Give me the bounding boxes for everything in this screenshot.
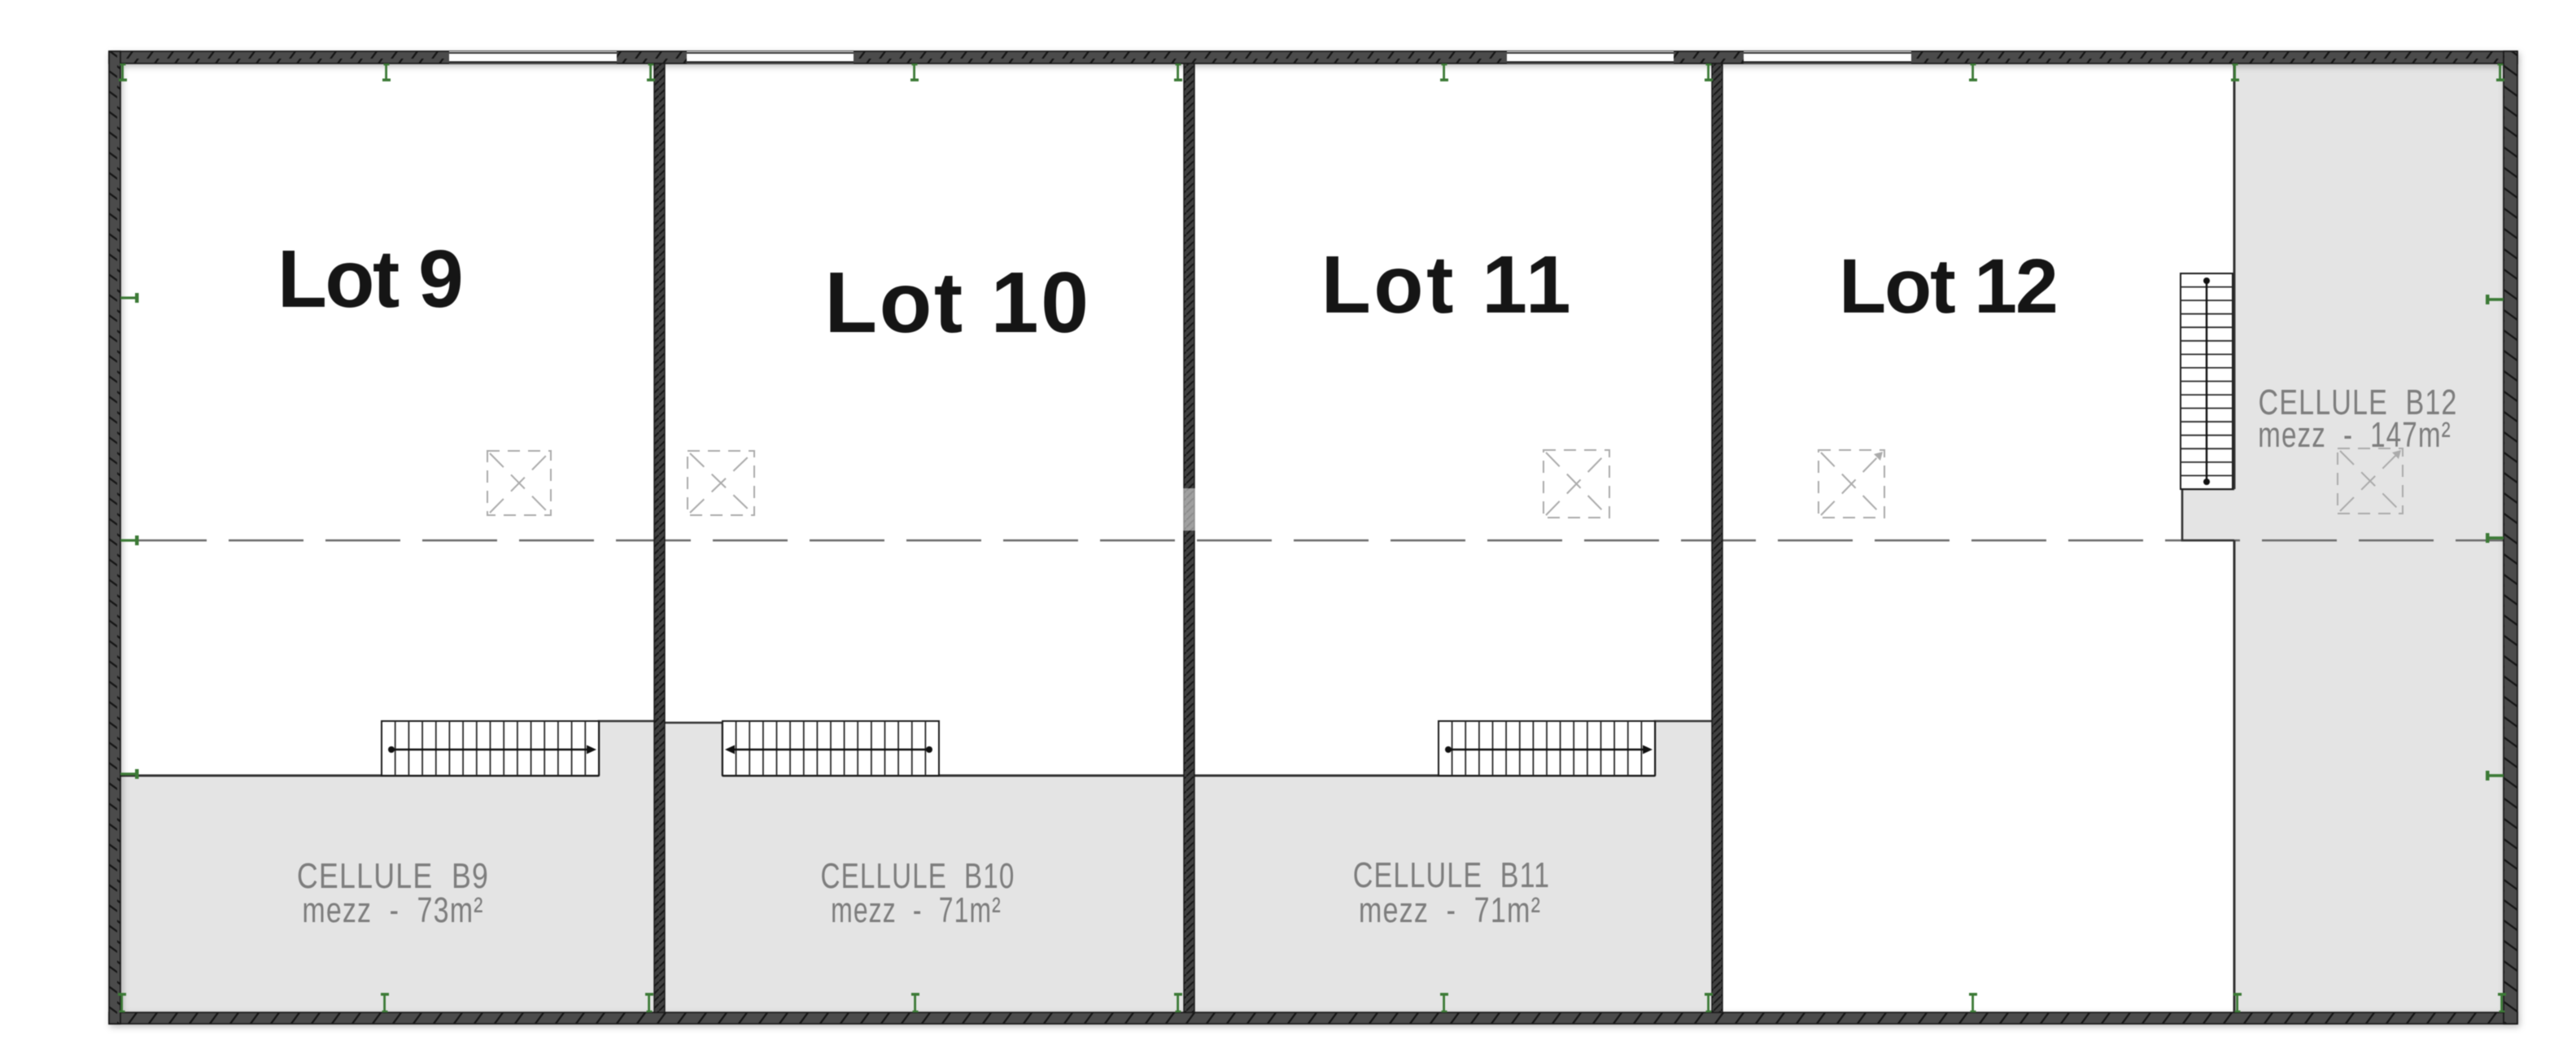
- svg-text:mezz - 71m²: mezz - 71m²: [831, 890, 1002, 930]
- svg-text:Lot 10: Lot 10: [824, 255, 1090, 351]
- svg-text:Lot 12: Lot 12: [1839, 243, 2057, 330]
- svg-text:mezz - 71m²: mezz - 71m²: [1359, 890, 1541, 930]
- svg-text:mezz - 147m²: mezz - 147m²: [2258, 416, 2452, 456]
- svg-text:Lot 11: Lot 11: [1321, 239, 1574, 330]
- svg-text:mezz - 73m²: mezz - 73m²: [302, 890, 483, 930]
- svg-text:Lot 9: Lot 9: [277, 234, 461, 325]
- svg-text:CELLULE B11: CELLULE B11: [1353, 855, 1550, 895]
